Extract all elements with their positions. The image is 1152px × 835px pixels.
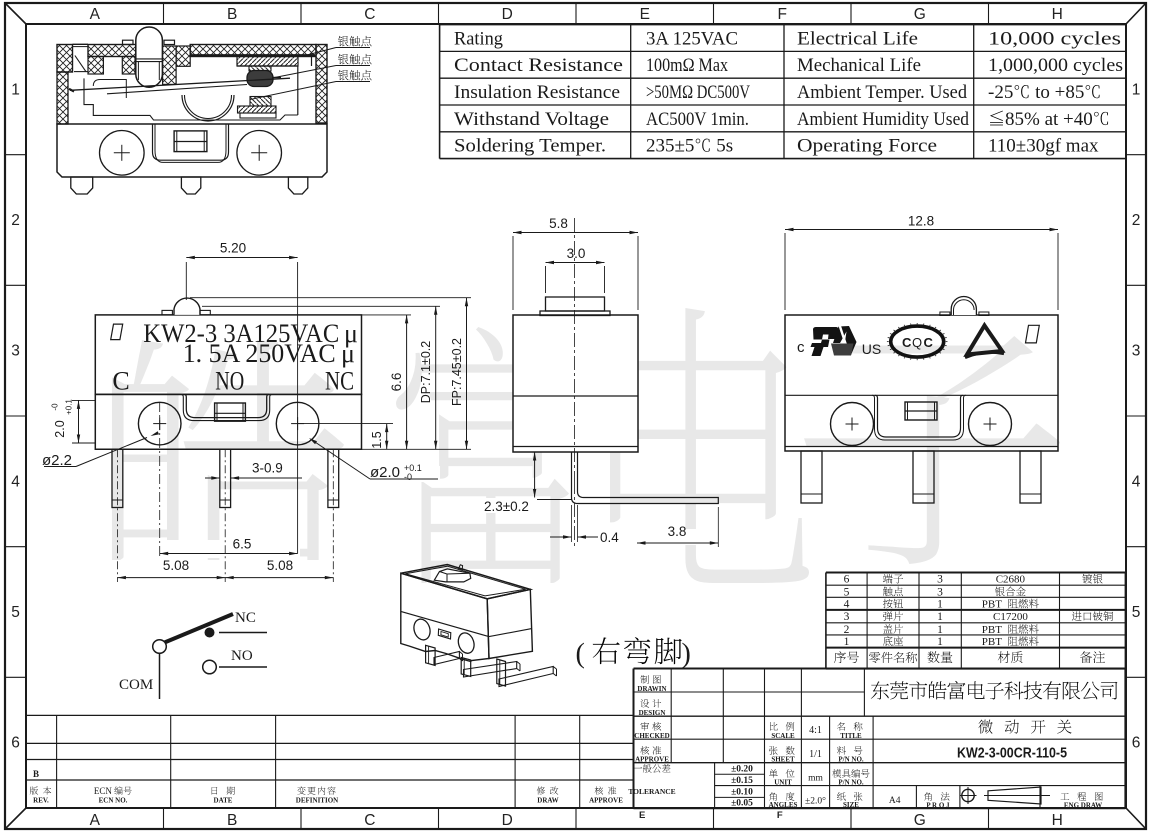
svg-text:5: 5 (844, 586, 850, 598)
svg-text:FP:7.45±0.2: FP:7.45±0.2 (450, 338, 464, 406)
svg-text:1. 5A 250VAC: 1. 5A 250VAC (183, 339, 336, 368)
svg-text:APPROVE: APPROVE (635, 756, 669, 764)
svg-text:6.6: 6.6 (389, 373, 404, 392)
svg-text:3: 3 (11, 343, 20, 360)
svg-text:±0.05: ±0.05 (731, 799, 753, 809)
svg-text:±0.10: ±0.10 (731, 787, 753, 797)
svg-text:mm: mm (808, 774, 823, 784)
svg-text:3-0.9: 3-0.9 (252, 461, 283, 476)
svg-text:+0.1: +0.1 (65, 399, 74, 415)
svg-text:3: 3 (937, 574, 943, 586)
svg-text:85% at +40: 85% at +40 (1005, 109, 1093, 130)
svg-text:P R O J: P R O J (926, 802, 950, 810)
svg-text:Rating: Rating (454, 28, 503, 49)
svg-text:DATE: DATE (214, 797, 233, 805)
svg-text:Mechanical Life: Mechanical Life (797, 55, 921, 76)
svg-text:NO: NO (215, 366, 244, 395)
svg-text:110±30gf max: 110±30gf max (988, 136, 1099, 157)
svg-text:0.4: 0.4 (600, 530, 619, 545)
svg-text:μ: μ (341, 339, 355, 368)
svg-text:SHEET: SHEET (771, 756, 795, 764)
svg-text:Operating Force: Operating Force (797, 136, 937, 157)
svg-text:CHECKED: CHECKED (634, 732, 669, 740)
svg-text:DESIGN: DESIGN (639, 709, 666, 717)
svg-text:5.20: 5.20 (220, 241, 246, 256)
svg-text:E: E (639, 810, 645, 821)
svg-text:F: F (777, 6, 786, 23)
svg-text:TOLERANCE: TOLERANCE (628, 787, 675, 796)
svg-text:2: 2 (844, 624, 850, 636)
svg-text:235±5: 235±5 (646, 136, 694, 157)
svg-text:-0: -0 (404, 472, 412, 482)
svg-text:F: F (777, 810, 783, 821)
svg-text:SCALE: SCALE (771, 732, 795, 740)
svg-text:3.8: 3.8 (668, 524, 687, 539)
svg-text:PBT: PBT (982, 624, 1002, 636)
svg-text:3.0: 3.0 (567, 246, 586, 261)
svg-text:6.5: 6.5 (233, 537, 252, 552)
svg-text:): ) (682, 639, 691, 670)
svg-text:ø2.0: ø2.0 (370, 464, 400, 481)
svg-text:APPROVE: APPROVE (589, 797, 623, 805)
svg-text:5.08: 5.08 (267, 558, 293, 573)
svg-text:5.8: 5.8 (549, 216, 568, 231)
svg-text:B: B (33, 769, 39, 779)
svg-text:PBT: PBT (982, 599, 1002, 611)
svg-text:TITLE: TITLE (840, 732, 862, 740)
svg-text:5s: 5s (716, 136, 733, 157)
svg-text:1.5: 1.5 (370, 431, 384, 448)
svg-text:C: C (112, 366, 129, 395)
svg-text:Withstand Voltage: Withstand Voltage (454, 109, 609, 130)
svg-text:±0.20: ±0.20 (731, 765, 753, 775)
svg-text:C: C (364, 6, 375, 23)
svg-text:B: B (227, 6, 237, 23)
svg-text:Electrical Life: Electrical Life (797, 28, 918, 49)
svg-text:±0.15: ±0.15 (731, 776, 753, 786)
svg-text:A: A (90, 812, 101, 829)
svg-text:US: US (862, 341, 881, 357)
svg-text:A: A (90, 6, 101, 23)
svg-text:H: H (1052, 6, 1063, 23)
svg-text:C2680: C2680 (996, 574, 1026, 586)
svg-text:B: B (227, 812, 237, 829)
svg-text:Ambient Humidity Used: Ambient Humidity Used (797, 109, 969, 130)
svg-text:NC: NC (325, 366, 354, 395)
svg-text:1,000,000 cycles: 1,000,000 cycles (988, 55, 1123, 76)
svg-text:E: E (640, 6, 650, 23)
svg-text:12.8: 12.8 (908, 214, 934, 229)
svg-text:3A 125VAC: 3A 125VAC (646, 28, 738, 49)
svg-text:PBT: PBT (982, 636, 1002, 648)
svg-text:UNIT: UNIT (774, 779, 792, 787)
svg-text:C: C (364, 812, 375, 829)
svg-text:H: H (1052, 812, 1063, 829)
svg-text:3: 3 (937, 586, 943, 598)
svg-text:P/N NO.: P/N NO. (838, 779, 864, 787)
svg-text:-0: -0 (51, 403, 60, 411)
svg-text:10,000 cycles: 10,000 cycles (988, 28, 1121, 49)
svg-text:NO: NO (231, 648, 253, 664)
svg-text:4: 4 (1132, 473, 1141, 490)
svg-text:DP:7.1±0.2: DP:7.1±0.2 (419, 341, 433, 403)
svg-text:5: 5 (11, 604, 20, 621)
svg-text:P/N NO.: P/N NO. (838, 756, 864, 764)
svg-text:ECN NO.: ECN NO. (99, 797, 128, 805)
svg-text:DRAWIN: DRAWIN (637, 685, 666, 693)
svg-text:NC: NC (235, 610, 256, 626)
svg-text:G: G (914, 6, 926, 23)
svg-text:AC500V 1min.: AC500V 1min. (646, 109, 749, 130)
svg-text:±2.0°: ±2.0° (805, 796, 826, 807)
svg-text:2: 2 (11, 212, 20, 229)
svg-text:2.0: 2.0 (53, 420, 67, 437)
svg-text:Insulation Resistance: Insulation Resistance (454, 82, 620, 103)
svg-text:D: D (502, 6, 513, 23)
svg-text:1: 1 (937, 599, 943, 611)
svg-text:4:1: 4:1 (809, 725, 822, 736)
svg-text:ECN: ECN (94, 786, 113, 796)
svg-text:100mΩ Max: 100mΩ Max (646, 55, 728, 76)
svg-text:3: 3 (844, 611, 850, 623)
svg-text:1: 1 (844, 636, 850, 648)
svg-text:C: C (902, 335, 912, 350)
svg-text:KW2-3-00CR-110-5: KW2-3-00CR-110-5 (957, 746, 1067, 762)
svg-text:2.3±0.2: 2.3±0.2 (484, 499, 529, 514)
svg-text:c: c (797, 339, 805, 356)
svg-text:Contact Resistance: Contact Resistance (454, 55, 623, 76)
svg-text:4: 4 (11, 473, 20, 490)
svg-text:5: 5 (1132, 604, 1141, 621)
svg-text:D: D (502, 812, 513, 829)
svg-text:2: 2 (1132, 212, 1141, 229)
svg-text:1: 1 (1132, 81, 1141, 98)
svg-text:SIZE: SIZE (843, 801, 859, 809)
svg-text:6: 6 (844, 574, 850, 586)
svg-text:Q: Q (912, 335, 922, 350)
svg-text:G: G (914, 812, 926, 829)
svg-text:-25: -25 (988, 82, 1013, 103)
svg-text:COM: COM (119, 677, 153, 693)
svg-text:Ambient Temper. Used: Ambient Temper. Used (797, 82, 967, 103)
svg-text:5.08: 5.08 (163, 558, 189, 573)
svg-text:1: 1 (937, 624, 943, 636)
svg-text:DRAW: DRAW (537, 797, 558, 805)
svg-text:ENG DRAW: ENG DRAW (1064, 802, 1102, 810)
svg-text:4: 4 (844, 599, 850, 611)
svg-text:>50MΩ DC500V: >50MΩ DC500V (646, 82, 750, 103)
svg-text:Soldering Temper.: Soldering Temper. (454, 136, 606, 157)
svg-text:to +85: to +85 (1035, 82, 1084, 103)
svg-text:1: 1 (937, 636, 943, 648)
svg-text:REV.: REV. (33, 797, 49, 805)
svg-text:1: 1 (11, 81, 20, 98)
svg-text:C17200: C17200 (993, 611, 1028, 623)
svg-text:C: C (924, 335, 934, 350)
svg-text:3: 3 (1132, 343, 1141, 360)
svg-text:6: 6 (11, 735, 20, 752)
svg-text:(: ( (576, 639, 585, 670)
svg-text:6: 6 (1132, 735, 1141, 752)
svg-text:A4: A4 (889, 796, 901, 806)
svg-text:1/1: 1/1 (809, 749, 822, 760)
svg-text:DEFINITION: DEFINITION (296, 797, 338, 805)
svg-text:1: 1 (937, 611, 943, 623)
svg-text:ANGLES: ANGLES (769, 801, 798, 809)
